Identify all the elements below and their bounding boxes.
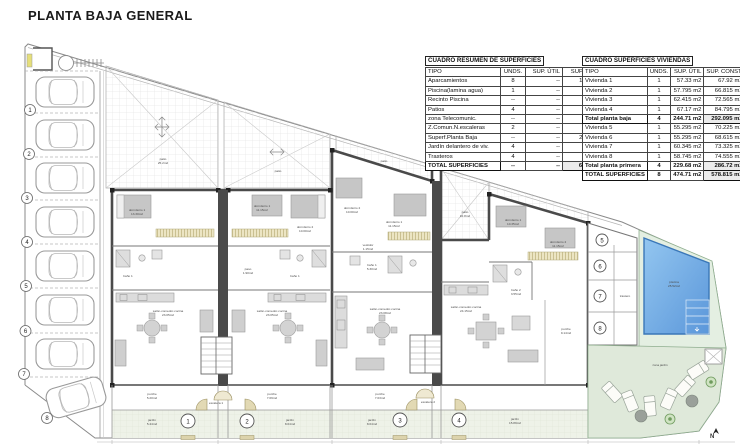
room-area: 23.08m2 — [379, 311, 391, 315]
table-cell: Vivienda 1 — [583, 77, 648, 86]
table-cell: -- — [526, 133, 563, 142]
column-header: SUP. ÚTIL — [671, 68, 704, 77]
table-cell: 1 — [501, 86, 526, 95]
room-area: 5.30m2 — [367, 267, 378, 271]
table-row: Vivienda 3162.415 m272.565 m2 — [583, 96, 740, 105]
table-row: Vivienda 8158.745 m274.555 m2 — [583, 152, 740, 161]
garden-label: zona jardín — [652, 363, 668, 367]
room-area: 10.35m2 — [507, 222, 519, 226]
table-cell: 4 — [647, 162, 670, 171]
table-cell: 2 — [501, 124, 526, 133]
svg-text:N: N — [710, 434, 714, 440]
trastero-strip: 5 6 7 8 trastero — [588, 223, 637, 345]
room-area: 5.20m2 — [147, 396, 158, 400]
patio-area: 25.2m2 — [158, 161, 169, 165]
table-cell: TOTAL SUPERFICIES — [583, 171, 648, 180]
room-area: 23.05m2 — [162, 313, 174, 317]
table-cell: -- — [501, 115, 526, 124]
viviendas-table-body: TIPOUNDS.SUP. ÚTILSUP. CONST.Vivienda 11… — [582, 67, 740, 181]
room-label: escalera 1 — [209, 401, 224, 405]
table-cell: 1 — [647, 143, 670, 152]
table-cell: Vivienda 6 — [583, 133, 648, 142]
table-cell: 55.295 m2 — [671, 124, 704, 133]
table-cell: 1 — [647, 133, 670, 142]
table-cell: -- — [526, 86, 563, 95]
room-label: trastero — [620, 294, 631, 298]
table-cell: zona Telecomunic. — [426, 115, 501, 124]
room-area: 23.05m2 — [266, 313, 278, 317]
table-title: CUADRO SUPERFICIES VIVIENDAS — [582, 56, 693, 66]
table-cell: 73.325 m2 — [704, 143, 740, 152]
column-header: SUP. CONST. — [704, 68, 740, 77]
table-cell: Total planta primera — [583, 162, 648, 171]
table-cell: 1 — [647, 86, 670, 95]
table-cell: Vivienda 7 — [583, 143, 648, 152]
room-area: 1.90m2 — [243, 271, 254, 275]
patio-label: patio — [275, 169, 282, 173]
room-area: 1.15m2 — [363, 247, 374, 251]
table-cell: Trasteros — [426, 152, 501, 161]
column-header: UNDS. — [647, 68, 670, 77]
room-area: 13.30m2 — [131, 212, 143, 216]
table-row: Vivienda 2157.795 m266.815 m2 — [583, 86, 740, 95]
column-header: UNDS. — [501, 68, 526, 77]
table-cell: 57.33 m2 — [671, 77, 704, 86]
table-cell: 60.345 m2 — [671, 143, 704, 152]
table-cell: 578.815 m2 — [704, 171, 740, 180]
room-area: 10.00m2 — [299, 229, 311, 233]
table-cell: -- — [526, 77, 563, 86]
room-label: baño 1 — [290, 274, 300, 278]
table-cell: -- — [526, 162, 563, 171]
table-cell: 8 — [647, 171, 670, 180]
table-cell: 58.745 m2 — [671, 152, 704, 161]
table-cell: Vivienda 2 — [583, 86, 648, 95]
table-cell: 1 — [647, 105, 670, 114]
table-cell: 68.615 m2 — [704, 133, 740, 142]
table-cell: 229.68 m2 — [671, 162, 704, 171]
table-cell: -- — [526, 152, 563, 161]
room-area: 15.89m2 — [509, 421, 521, 425]
table-cell: -- — [526, 96, 563, 105]
room-area: 11.15m2 — [552, 244, 564, 248]
table-row: Total planta baja4244.71 m2292.095 m2 — [583, 115, 740, 124]
table-cell: 8 — [501, 77, 526, 86]
patio-label: patio — [381, 159, 388, 163]
table-cell: -- — [526, 105, 563, 114]
room-area: 11.15m2 — [256, 208, 268, 212]
table-cell: Piscina(lamina agua) — [426, 86, 501, 95]
table-cell: Vivienda 4 — [583, 105, 648, 114]
table-cell: 4 — [647, 115, 670, 124]
table-cell: 4 — [501, 143, 526, 152]
room-area: 7.03m2 — [375, 396, 386, 400]
table-cell: Vivienda 5 — [583, 124, 648, 133]
table-cell: 74.555 m2 — [704, 152, 740, 161]
table-cell: Aparcamientos — [426, 77, 501, 86]
table-cell: 67.17 m2 — [671, 105, 704, 114]
table-cell: 72.565 m2 — [704, 96, 740, 105]
table-cell: -- — [526, 115, 563, 124]
table-header-row: TIPOUNDS.SUP. ÚTILSUP. CONST. — [583, 68, 740, 77]
room-area: 7.09m2 — [267, 396, 278, 400]
table-cell: -- — [501, 96, 526, 105]
room-area: 5.44m2 — [147, 422, 158, 426]
table-row: TOTAL SUPERFICIES8474.71 m2578.815 m2 — [583, 171, 740, 180]
table-cell: -- — [526, 143, 563, 152]
table-cell: 286.72 m2 — [704, 162, 740, 171]
table-cell: Total planta baja — [583, 115, 648, 124]
table-cell: -- — [501, 162, 526, 171]
table-cell: 70.225 m2 — [704, 124, 740, 133]
table-cell: Vivienda 3 — [583, 96, 648, 105]
column-header: TIPO — [426, 68, 501, 77]
table-cell: 1 — [647, 152, 670, 161]
table-cell: 57.795 m2 — [671, 86, 704, 95]
table-cell: 1 — [647, 96, 670, 105]
table-cell: 1 — [647, 77, 670, 86]
table-cell: Patios — [426, 105, 501, 114]
page-title: PLANTA BAJA GENERAL — [28, 8, 193, 23]
table-row: Vivienda 4167.17 m284.795 m2 — [583, 105, 740, 114]
table-cell: 474.71 m2 — [671, 171, 704, 180]
table-cell: TOTAL SUPERFICIES — [426, 162, 501, 171]
table-cell: -- — [526, 124, 563, 133]
table-cell: 84.795 m2 — [704, 105, 740, 114]
table-row: Vivienda 1157.33 m267.92 m2 — [583, 77, 740, 86]
table-cell: 55.295 m2 — [671, 133, 704, 142]
room-label: baño 1 — [123, 274, 133, 278]
column-header: TIPO — [583, 68, 648, 77]
table-cell: Vivienda 8 — [583, 152, 648, 161]
room-label: escalera 2 — [421, 400, 436, 404]
room-area: 3.55m2 — [511, 292, 522, 296]
floor-plan-sheet: { "title": "PLANTA BAJA GENERAL", "table… — [0, 0, 740, 445]
column-header: SUP. ÚTIL — [526, 68, 563, 77]
table-cell: -- — [501, 133, 526, 142]
pool-area: piscina 25.52m2 — [639, 230, 726, 348]
table-cell: 244.71 m2 — [671, 115, 704, 124]
table-cell: 4 — [501, 105, 526, 114]
table-row: Vivienda 5155.295 m270.225 m2 — [583, 124, 740, 133]
table-row: Vivienda 6155.295 m268.615 m2 — [583, 133, 740, 142]
patio-area: 10.8m2 — [460, 214, 471, 218]
table-cell: 292.095 m2 — [704, 115, 740, 124]
table-cell: Superf.Planta Baja — [426, 133, 501, 142]
room-area: 8.04m2 — [285, 422, 296, 426]
table-cell: 66.815 m2 — [704, 86, 740, 95]
table-cell: 4 — [501, 152, 526, 161]
dwellings-areas-table: CUADRO SUPERFICIES VIVIENDAS TIPOUNDS.SU… — [582, 56, 740, 181]
table-cell: Z.Comun.N.escaleras — [426, 124, 501, 133]
room-area: 24.15m2 — [460, 309, 472, 313]
pavilion-icon — [705, 349, 722, 364]
table-row: Vivienda 7160.345 m273.325 m2 — [583, 143, 740, 152]
table-cell: Jardín delantero de viv. — [426, 143, 501, 152]
table-row: Total planta primera4229.68 m2286.72 m2 — [583, 162, 740, 171]
pool-area-label: 25.52m2 — [668, 284, 680, 288]
north-indicator: N — [710, 428, 719, 440]
room-area: 9.14m2 — [561, 331, 572, 335]
dimension-line — [97, 440, 735, 444]
table-title: CUADRO RESUMEN DE SUPERFICIES — [425, 56, 544, 66]
room-area: 10.00m2 — [346, 210, 358, 214]
table-cell: 1 — [647, 124, 670, 133]
garden-area: zona jardín — [588, 345, 726, 438]
table-cell: 67.92 m2 — [704, 77, 740, 86]
table-cell: 62.415 m2 — [671, 96, 704, 105]
room-area: 8.04m2 — [367, 422, 378, 426]
table-cell: Recinto Piscina — [426, 96, 501, 105]
room-area: 11.15m2 — [388, 224, 400, 228]
